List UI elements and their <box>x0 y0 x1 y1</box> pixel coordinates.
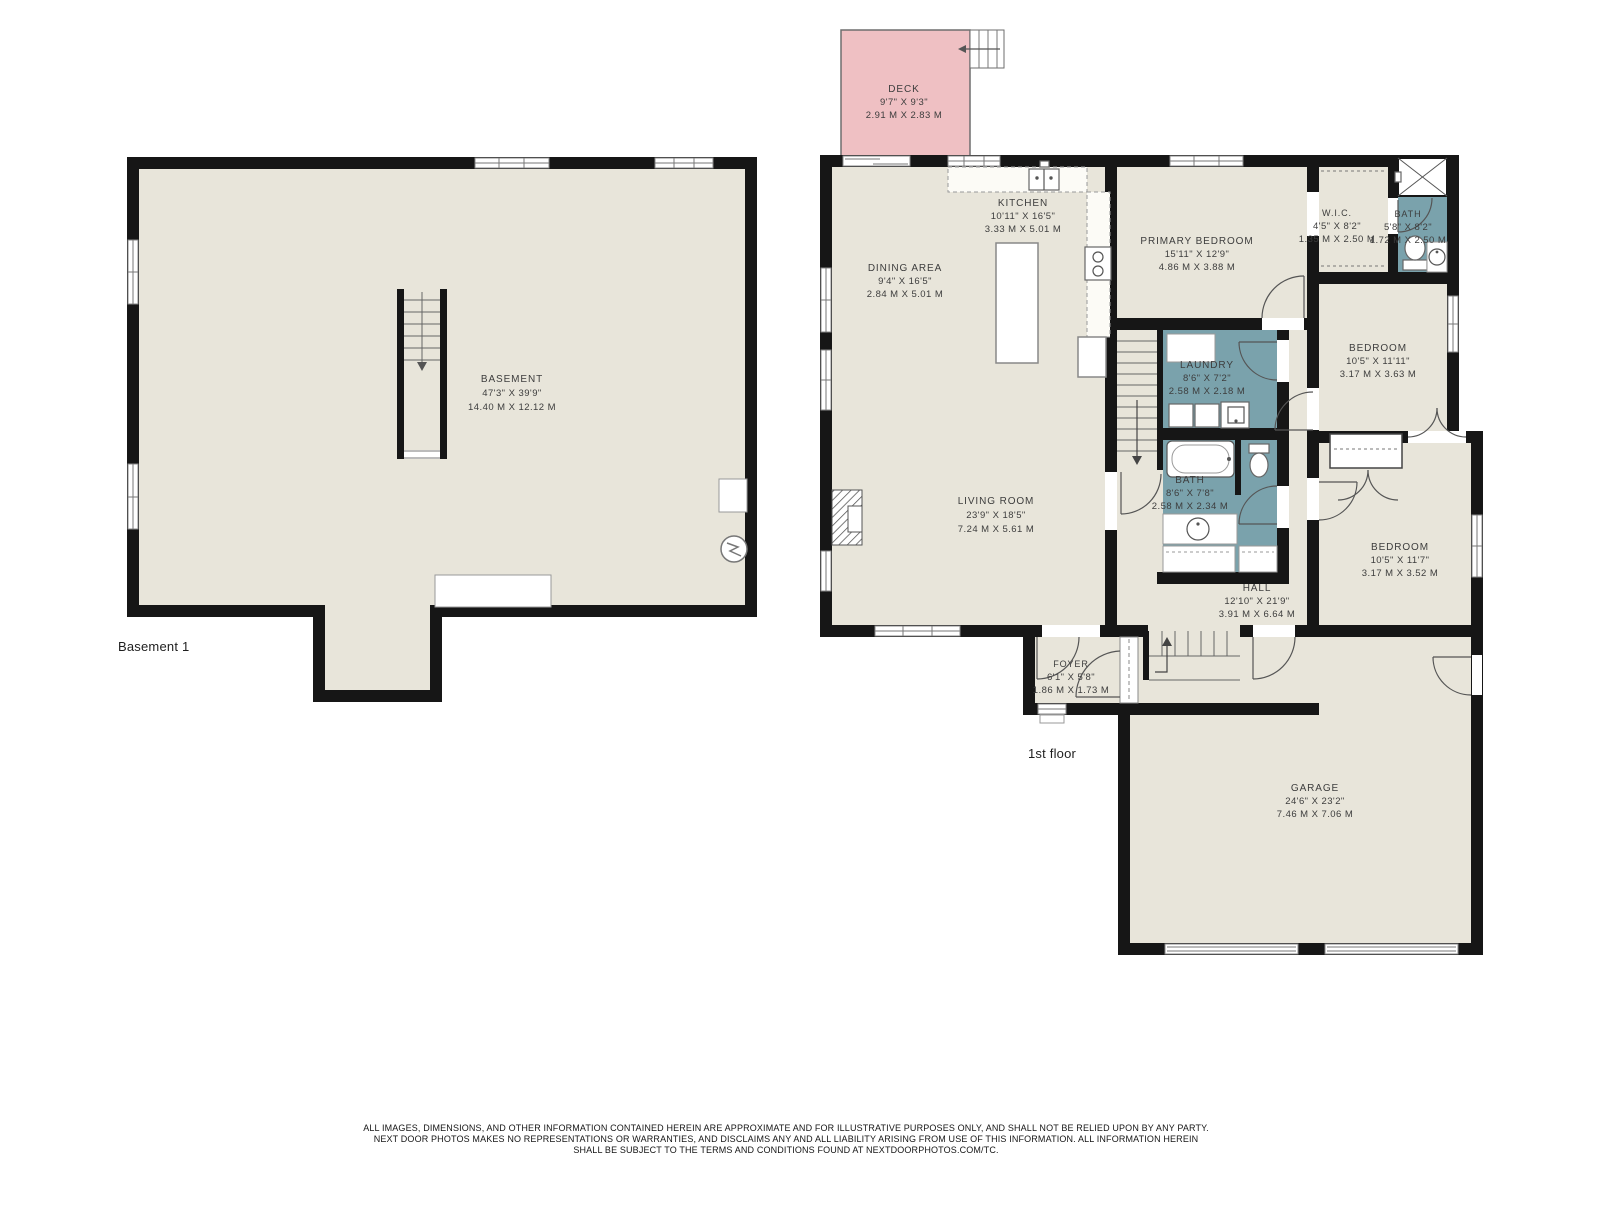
room-dim-metric: 3.17 M X 3.63 M <box>1340 369 1416 380</box>
room-dim-metric: 1.72 M X 2.50 M <box>1370 235 1446 246</box>
room-name: W.I.C. <box>1322 208 1352 218</box>
room-label-dining-area: DINING AREA 9'4" X 16'5" 2.84 M X 5.01 M <box>867 263 943 300</box>
room-name: BEDROOM <box>1371 542 1429 553</box>
hall-closet <box>1163 546 1235 572</box>
room-dim-metric: 2.84 M X 5.01 M <box>867 289 943 300</box>
room-dim-imperial: 8'6" X 7'8" <box>1166 488 1214 499</box>
refrigerator <box>1078 337 1106 377</box>
room-name: BASEMENT <box>481 374 543 385</box>
room-dim-metric: 1.35 M X 2.50 M <box>1299 234 1375 245</box>
stove <box>1085 247 1111 280</box>
room-dim-imperial: 47'3" X 39'9" <box>482 388 542 399</box>
bathtub <box>1167 441 1234 477</box>
first-floor-label: 1st floor <box>1028 746 1077 761</box>
room-name: BEDROOM <box>1349 343 1407 354</box>
room-name: DECK <box>888 84 919 95</box>
room-dim-metric: 14.40 M X 12.12 M <box>468 402 556 413</box>
room-dim-imperial: 24'6" X 23'2" <box>1285 796 1345 807</box>
hall-closet <box>1239 546 1277 572</box>
room-dim-metric: 2.91 M X 2.83 M <box>866 110 942 121</box>
disclaimer-line-1: ALL IMAGES, DIMENSIONS, AND OTHER INFORM… <box>363 1123 1209 1133</box>
floorplan-canvas: BASEMENT 47'3" X 39'9" 14.40 M X 12.12 M… <box>0 0 1600 1200</box>
disclaimer-line-2: NEXT DOOR PHOTOS MAKES NO REPRESENTATION… <box>374 1134 1199 1144</box>
shower <box>1395 158 1447 196</box>
room-name: BATH <box>1395 209 1422 219</box>
laundry-closet <box>1167 334 1215 362</box>
room-dim-imperial: 8'6" X 7'2" <box>1183 373 1231 384</box>
room-dim-metric: 1.86 M X 1.73 M <box>1033 685 1109 696</box>
room-dim-imperial: 9'4" X 16'5" <box>878 276 932 287</box>
room-name: LIVING ROOM <box>958 496 1035 507</box>
basement-plan: BASEMENT 47'3" X 39'9" 14.40 M X 12.12 M… <box>118 157 757 702</box>
electrical-panel-icon <box>721 536 747 562</box>
deck <box>841 30 1004 157</box>
room-name: LAUNDRY <box>1180 360 1234 371</box>
room-dim-imperial: 6'1" X 5'8" <box>1047 672 1095 683</box>
room-name: PRIMARY BEDROOM <box>1140 236 1253 247</box>
room-dim-metric: 3.91 M X 6.64 M <box>1219 609 1295 620</box>
kitchen-counter <box>948 167 1087 192</box>
room-name: GARAGE <box>1291 783 1339 794</box>
room-dim-imperial: 5'8" X 8'2" <box>1384 222 1432 233</box>
first-floor-plan: DECK 9'7" X 9'3" 2.91 M X 2.83 M KITCHEN… <box>820 30 1483 955</box>
room-label-living-room: LIVING ROOM 23'9" X 18'5" 7.24 M X 5.61 … <box>958 496 1035 535</box>
fireplace <box>832 490 862 545</box>
room-label-bedroom-ne: BEDROOM 10'5" X 11'11" 3.17 M X 3.63 M <box>1340 343 1416 380</box>
basement-floor-label: Basement 1 <box>118 639 189 654</box>
basement-storage-box <box>435 575 551 607</box>
room-dim-imperial: 15'11" X 12'9" <box>1165 249 1230 260</box>
room-dim-imperial: 10'5" X 11'11" <box>1346 356 1410 367</box>
room-dim-metric: 3.33 M X 5.01 M <box>985 224 1061 235</box>
room-dim-imperial: 10'11" X 16'5" <box>991 211 1056 222</box>
room-name: DINING AREA <box>868 263 942 274</box>
disclaimer-line-3: SHALL BE SUBJECT TO THE TERMS AND CONDIT… <box>573 1145 998 1155</box>
toilet <box>1249 444 1269 477</box>
room-name: BATH <box>1175 475 1205 486</box>
room-dim-metric: 7.24 M X 5.61 M <box>958 524 1034 535</box>
room-dim-metric: 7.46 M X 7.06 M <box>1277 809 1353 820</box>
dryer <box>1195 404 1219 427</box>
washer <box>1169 404 1193 427</box>
room-dim-imperial: 4'5" X 8'2" <box>1313 221 1361 232</box>
footer-disclaimer: ALL IMAGES, DIMENSIONS, AND OTHER INFORM… <box>363 1123 1209 1155</box>
room-name: KITCHEN <box>998 198 1048 209</box>
bath-vanity <box>1163 514 1237 544</box>
bath-sink <box>1427 242 1447 272</box>
room-dim-imperial: 23'9" X 18'5" <box>966 510 1026 521</box>
room-dim-imperial: 12'10" X 21'9" <box>1224 596 1289 607</box>
room-dim-metric: 2.58 M X 2.18 M <box>1169 386 1245 397</box>
room-label-bedroom-se: BEDROOM 10'5" X 11'7" 3.17 M X 3.52 M <box>1362 542 1438 579</box>
room-dim-imperial: 10'5" X 11'7" <box>1371 555 1430 566</box>
room-dim-metric: 2.58 M X 2.34 M <box>1152 501 1228 512</box>
room-name: FOYER <box>1053 659 1089 669</box>
room-dim-imperial: 9'7" X 9'3" <box>880 97 928 108</box>
room-dim-metric: 4.86 M X 3.88 M <box>1159 262 1235 273</box>
bedroom-closet <box>1330 434 1402 468</box>
room-name: HALL <box>1243 583 1272 594</box>
basement-wall-box <box>719 479 747 512</box>
room-dim-metric: 3.17 M X 3.52 M <box>1362 568 1438 579</box>
laundry-sink <box>1221 402 1249 428</box>
front-door-opening <box>1120 637 1138 703</box>
kitchen-island <box>996 243 1038 363</box>
